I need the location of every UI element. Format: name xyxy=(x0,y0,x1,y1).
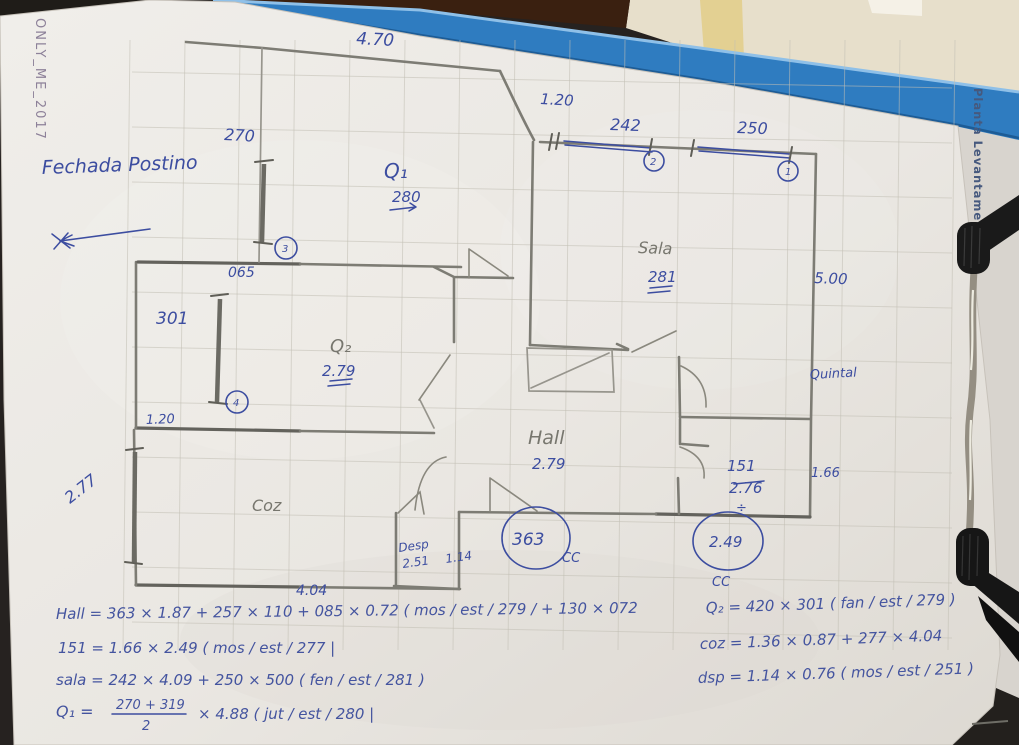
circled-value-wc: 2.49 xyxy=(709,533,742,551)
window-tag-2: 2 xyxy=(650,157,656,168)
dim-window-sala-a: 242 xyxy=(610,115,641,135)
dim-window-q1: 270 xyxy=(224,125,255,146)
formula-wc: 151 = 1.66 × 2.49 ( mos / est / 277 | xyxy=(58,639,335,657)
room-sala-height: 281 xyxy=(648,268,677,286)
room-q2-label: Q₂ xyxy=(330,336,351,357)
formula-q1-tail: × 4.88 ( jut / est / 280 | xyxy=(198,705,374,723)
formula-sala: sala = 242 × 4.09 + 250 × 500 ( fen / es… xyxy=(56,671,425,689)
formula-q1-lhs: Q₁ = xyxy=(56,702,94,721)
room-quintal-label: Quintal xyxy=(809,366,857,383)
window-tag-4: 4 xyxy=(233,398,239,409)
dim-window-sala-b: 250 xyxy=(737,118,768,138)
room-coz-label: Coz xyxy=(252,496,282,515)
sketch-photo-canvas: ONLY_ME_2017 Planta Levantamento Fechada… xyxy=(0,0,1019,745)
room-q1-height: 280 xyxy=(392,188,421,206)
room-hall-height: 2.79 xyxy=(532,455,565,473)
room-hall-label: Hall xyxy=(528,427,565,449)
dim-coz-width: 4.04 xyxy=(296,583,327,599)
room-wc-divide-mark: ÷ xyxy=(736,501,747,516)
room-wc-width: 1.66 xyxy=(811,466,840,481)
room-wc-label: 151 xyxy=(727,457,756,475)
watermark-text: ONLY_ME_2017 xyxy=(32,18,47,141)
cc-mark-hall: CC xyxy=(562,551,581,566)
formula-q1-fraction-denominator: 2 xyxy=(142,719,150,734)
photo-of-floor-plan-sketch: ONLY_ME_2017 Planta Levantamento Fechada… xyxy=(0,0,1019,745)
window-tag-1: 1 xyxy=(785,167,791,178)
formula-q1-fraction-numerator: 270 + 319 xyxy=(116,698,185,713)
dim-top-recess: 1.20 xyxy=(540,90,574,110)
dim-recess-left: 065 xyxy=(228,265,255,281)
dim-top-width: 4.70 xyxy=(356,29,395,51)
dim-window-q2: 301 xyxy=(156,309,188,329)
room-quintal-width: 5.00 xyxy=(814,269,848,288)
window-tag-3: 3 xyxy=(282,244,288,255)
dim-left-recess: 1.20 xyxy=(146,412,175,428)
room-q1-label: Q₁ xyxy=(384,159,408,183)
room-wc-height: 2.76 xyxy=(729,479,762,497)
room-q2-height: 2.79 xyxy=(322,362,355,380)
room-sala-label: Sala xyxy=(638,238,673,258)
circled-value-hall: 363 xyxy=(512,530,544,550)
cc-mark-wc: CC xyxy=(712,575,731,590)
